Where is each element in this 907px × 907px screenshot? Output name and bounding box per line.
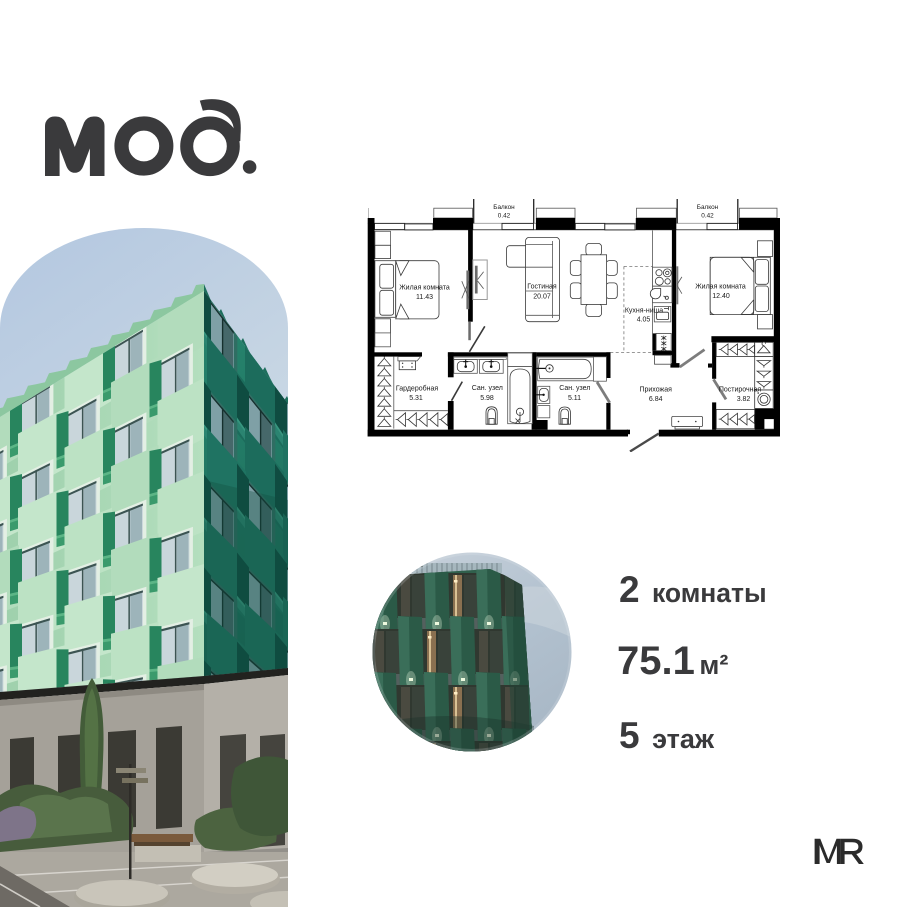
svg-text:Балкон: Балкон: [493, 204, 515, 211]
svg-text:5.31: 5.31: [409, 395, 423, 402]
svg-text:Жилая комната: Жилая комната: [399, 284, 450, 291]
svg-text:Постирочная: Постирочная: [719, 387, 762, 394]
svg-text:0.42: 0.42: [701, 213, 714, 220]
svg-text:11.43: 11.43: [416, 294, 433, 301]
svg-text:Прихожая: Прихожая: [639, 387, 672, 394]
svg-text:5.98: 5.98: [480, 395, 494, 402]
svg-text:Балкон: Балкон: [697, 204, 719, 211]
svg-text:0.42: 0.42: [498, 213, 511, 220]
svg-text:Гардеробная: Гардеробная: [396, 385, 439, 393]
svg-text:Кухня-ниша: Кухня-ниша: [625, 308, 663, 315]
svg-text:5.11: 5.11: [568, 395, 581, 402]
svg-text:Сан. узел: Сан. узел: [559, 385, 590, 392]
svg-text:Гостиная: Гостиная: [527, 284, 557, 291]
svg-text:6.84: 6.84: [649, 396, 663, 403]
svg-text:12.40: 12.40: [712, 293, 730, 300]
svg-text:3.82: 3.82: [737, 396, 751, 403]
svg-text:Сан. узел: Сан. узел: [472, 385, 503, 392]
svg-text:Жилая комната: Жилая комната: [695, 284, 746, 291]
svg-text:4.05: 4.05: [637, 316, 651, 323]
svg-text:20.07: 20.07: [533, 293, 551, 300]
